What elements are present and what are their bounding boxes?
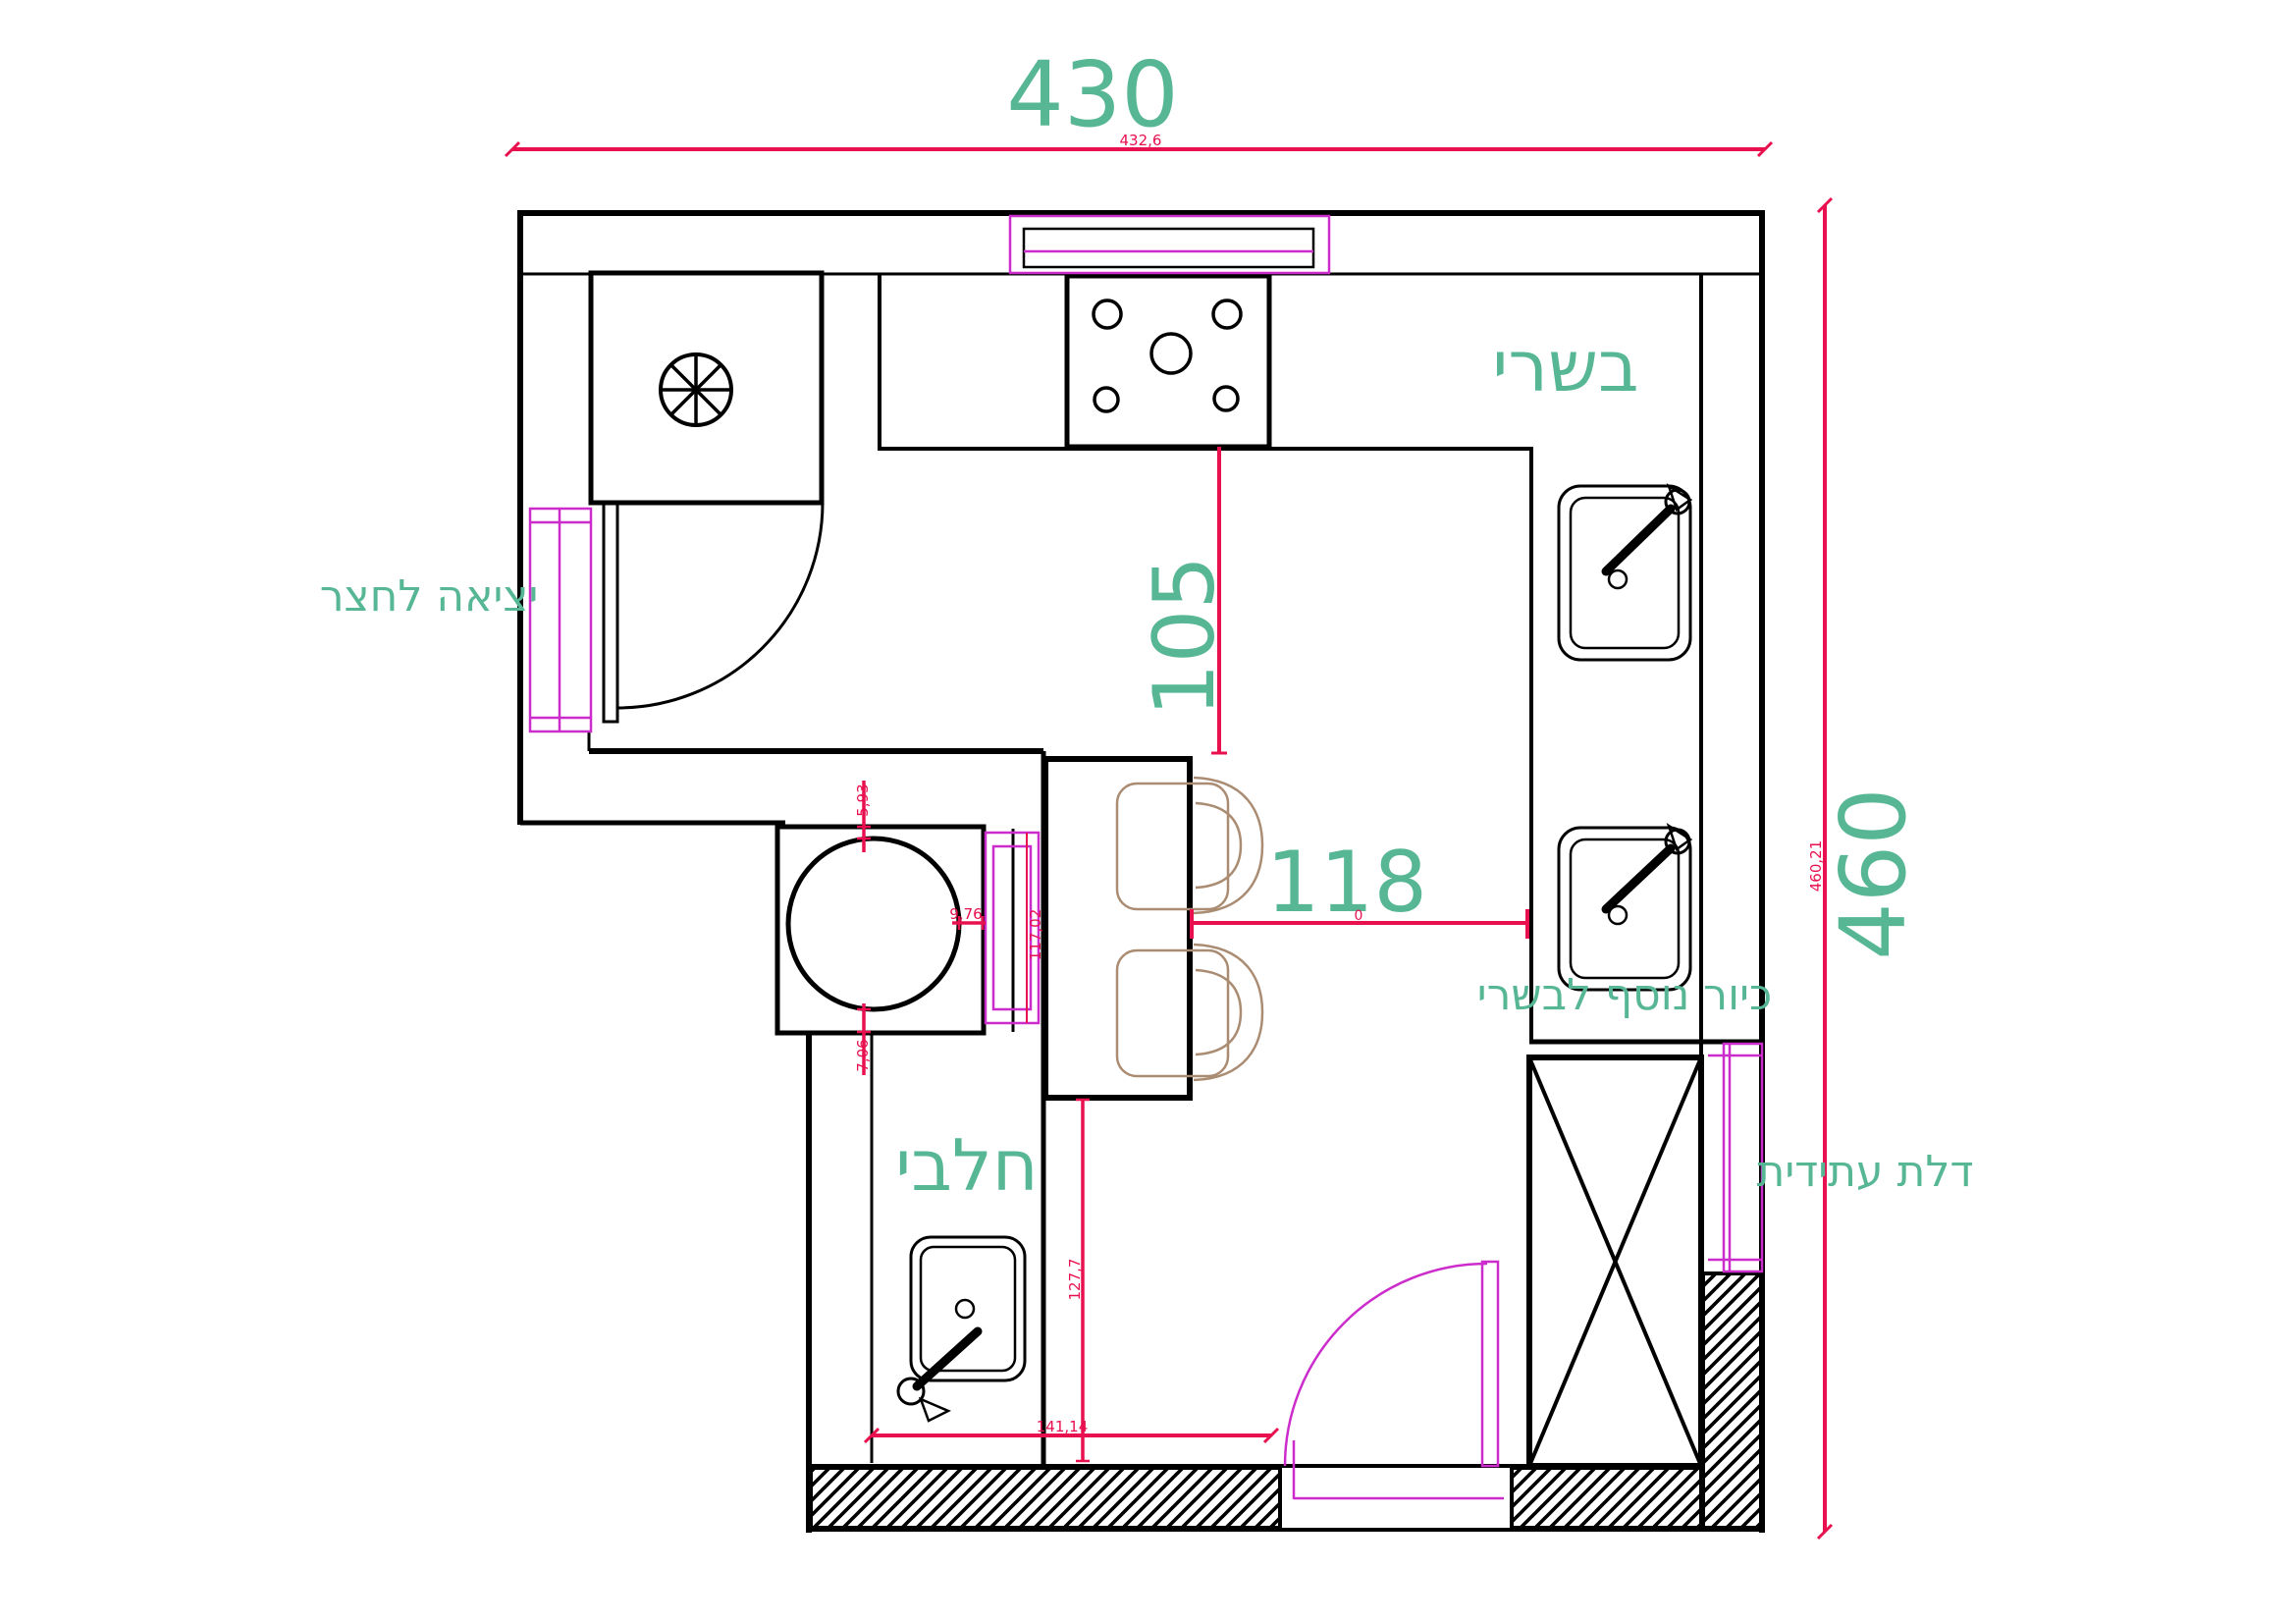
burner-icon [1213,300,1241,328]
door-swing-arc [1285,1264,1487,1466]
dairy-sink [898,1237,1025,1421]
dim-label-total-height-exact: 460,21 [1807,840,1825,893]
burner-icon [1214,387,1238,410]
entry-door [1285,1262,1504,1499]
label-dairy-zone: חלבי [895,1124,1039,1207]
tap-hole-icon [1609,570,1627,588]
stove [1067,276,1269,447]
corner-counter [591,273,822,503]
label-extra-meat-sink: כיור נוסף לבשרי [1477,970,1773,1020]
dim-label-9-76: 9,76 [949,905,982,923]
corner-carousel-icon [661,354,731,425]
label-future-door: דלת עתידית [1756,1147,1973,1197]
door-leaf [604,503,617,722]
round-table-counter [777,827,984,1033]
zone-labels: בשרי חלבי יציאה לחצר כיור נוסף לבשרי דלת… [320,325,1974,1207]
dim-label-7-06: 7,06 [854,1039,872,1071]
yard-door [604,503,823,722]
dimension-labels: 430 432,6 460 460,21 105 118 0 5,93 7,06… [854,42,1926,1435]
dim-label-118-offset: 0 [1355,908,1363,924]
burner-center-icon [1151,334,1191,373]
hatch-bottom-left [811,1468,1280,1528]
burner-icon [1095,388,1118,411]
dim-label-total-width-exact: 432,6 [1120,132,1162,149]
label-exit-to-yard: יציאה לחצר [320,571,539,622]
label-meat-zone: בשרי [1492,325,1638,407]
dim-label-117-02: 117,02 [1027,909,1044,961]
faucet-icon [917,1331,978,1386]
dim-label-127-7: 127,7 [1066,1259,1084,1301]
dim-label-141-14: 141,14 [1037,1418,1089,1435]
top-window [1010,216,1329,273]
dim-label-5-93: 5,93 [854,784,872,816]
faucet-spout-icon [921,1399,948,1421]
left-window [530,509,591,731]
future-door-window [1708,1044,1763,1271]
dim-label-118: 118 [1266,834,1427,932]
dim-label-105: 105 [1136,556,1234,717]
floor-plan-page: 430 432,6 460 460,21 105 118 0 5,93 7,06… [0,0,2296,1623]
round-table-symbol [788,839,959,1009]
future-door-box [1529,1057,1701,1466]
hatched-wall-sections [811,1273,1762,1528]
tap-hole-icon [956,1300,974,1318]
burner-icon [1094,300,1121,328]
dim-label-total-height: 460 [1821,787,1926,960]
door-leaf [1482,1262,1498,1466]
faucet-icon [1606,848,1671,909]
meat-sink-lower [1559,826,1690,990]
floor-plan-canvas: 430 432,6 460 460,21 105 118 0 5,93 7,06… [0,0,2296,1623]
door-swing-arc [617,503,823,708]
hatch-right [1703,1273,1762,1528]
walls [517,210,1764,1533]
faucet-icon [1606,509,1671,571]
hatch-bottom-middle [1512,1468,1701,1528]
meat-sink-upper [1559,486,1690,660]
